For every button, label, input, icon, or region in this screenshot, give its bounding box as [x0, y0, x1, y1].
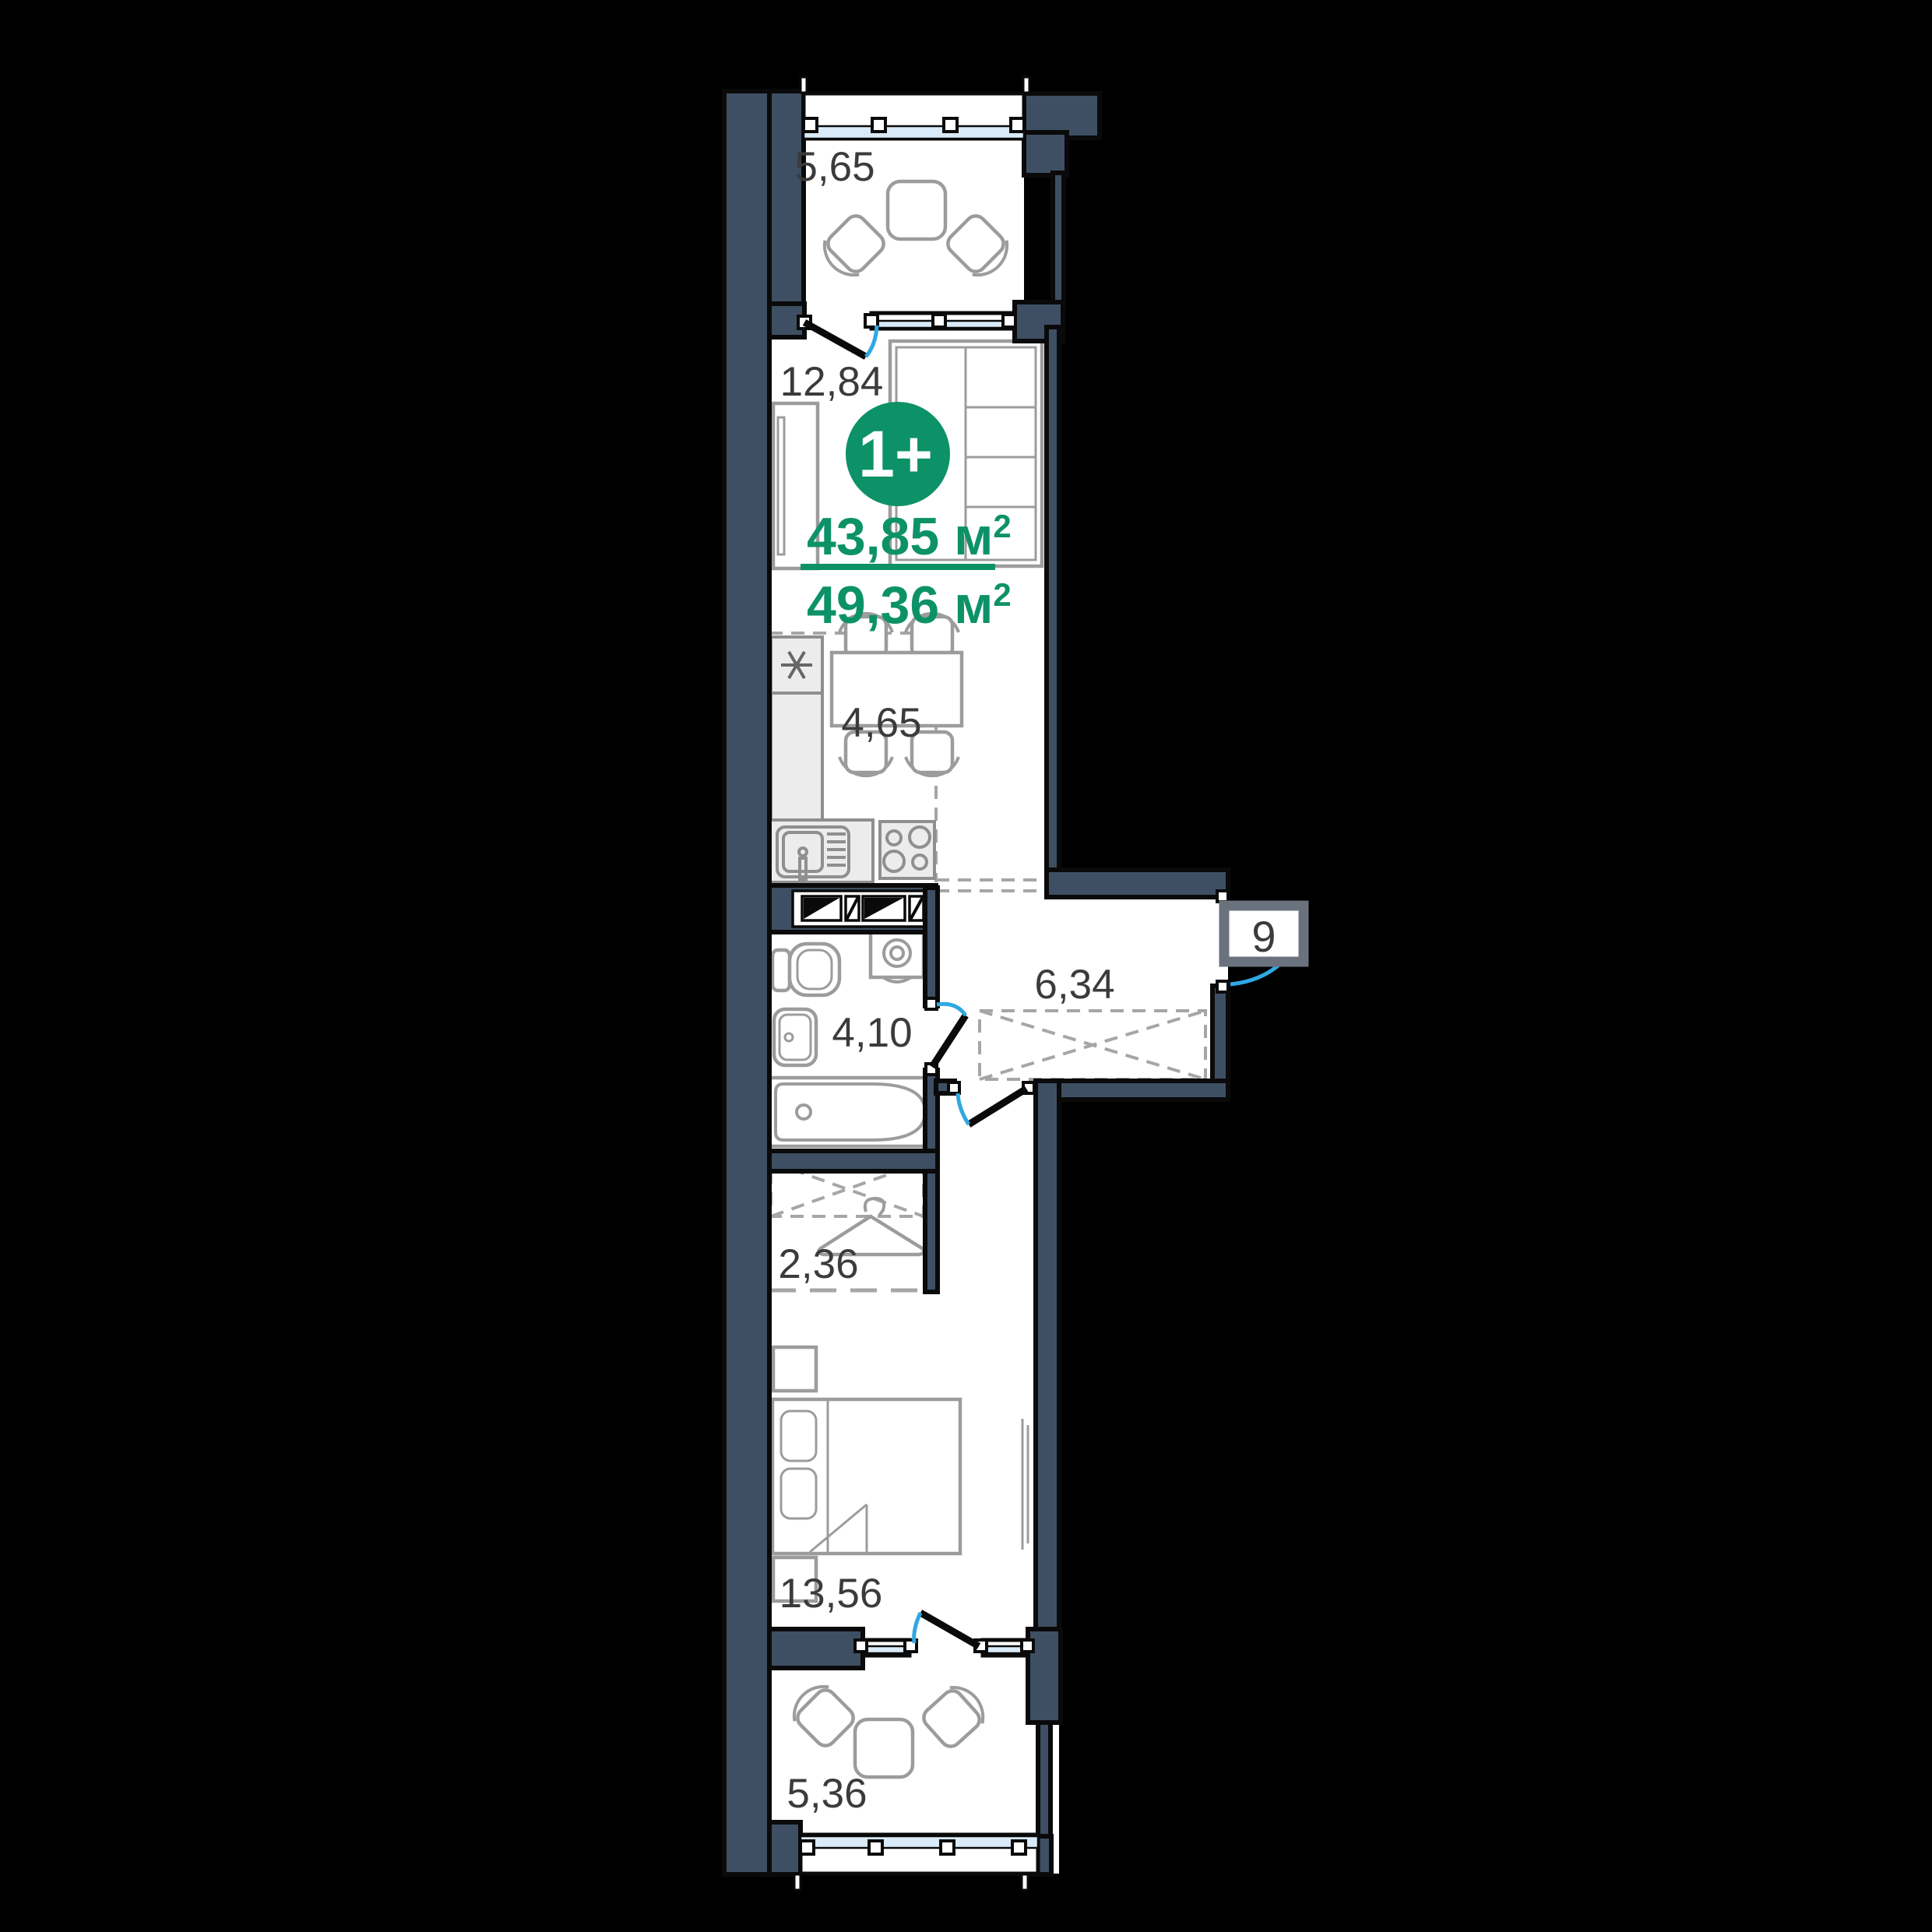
nightstand: [773, 1347, 816, 1391]
area-divider-rule: [801, 564, 995, 570]
room-label-bathroom: 4,10: [832, 1010, 912, 1056]
room-label-balcony-bottom: 5,36: [787, 1771, 867, 1817]
unit-number-badge: 9: [1224, 906, 1304, 962]
room-label-bedroom: 13,56: [779, 1571, 883, 1617]
wall-left-main: [724, 91, 769, 1874]
room-label-balcony-top: 5,65: [794, 144, 875, 190]
floor-plan-drawing: 9 1+ 43,85 м2 49,36 м2 5,65 12,84 4,65 6…: [0, 0, 1932, 1932]
vent-shaft: [769, 885, 936, 932]
area-living-label: 43,85 м2: [807, 507, 1012, 566]
wall-bedroom-right: [1036, 1081, 1059, 1630]
unit-number: 9: [1251, 912, 1276, 961]
unit-type-label: 1+: [858, 417, 933, 491]
wall-step: [769, 1822, 801, 1874]
balcony-table: [888, 181, 945, 239]
window-top-glazing: [804, 126, 1024, 139]
room-label-kitchen: 4,65: [841, 700, 921, 746]
wall-balcony-right: [1053, 173, 1064, 307]
room-label-living: 12,84: [780, 359, 884, 405]
wall-right-step: [1024, 132, 1067, 175]
wall-hall-top: [1047, 870, 1228, 897]
wall-hall-bottom: [1036, 1081, 1228, 1100]
floor-plan[interactable]: 9 1+ 43,85 м2 49,36 м2 5,65 12,84 4,65 6…: [0, 0, 1932, 1932]
wall-hall-right: [1212, 986, 1228, 1082]
wall-bedroom-balcony-left: [769, 1629, 863, 1668]
window-bottom-glazing: [801, 1836, 1038, 1848]
wall-balcony-bottom-right: [1038, 1723, 1050, 1836]
toilet-tank: [772, 950, 790, 991]
kitchen-fixtures: [769, 614, 962, 882]
balcony-table: [855, 1719, 913, 1777]
wall-bath-wardrobe-divider: [769, 1151, 938, 1171]
wall-bathroom-right-upper: [925, 888, 938, 1006]
area-total-label: 49,36 м2: [807, 575, 1012, 635]
room-label-wardrobe: 2,36: [778, 1241, 858, 1287]
kitchen-counter: [771, 693, 822, 820]
wall-wardrobe-right: [925, 1171, 938, 1292]
room-label-hall: 6,34: [1034, 962, 1114, 1008]
wall-living-right: [1047, 327, 1059, 872]
